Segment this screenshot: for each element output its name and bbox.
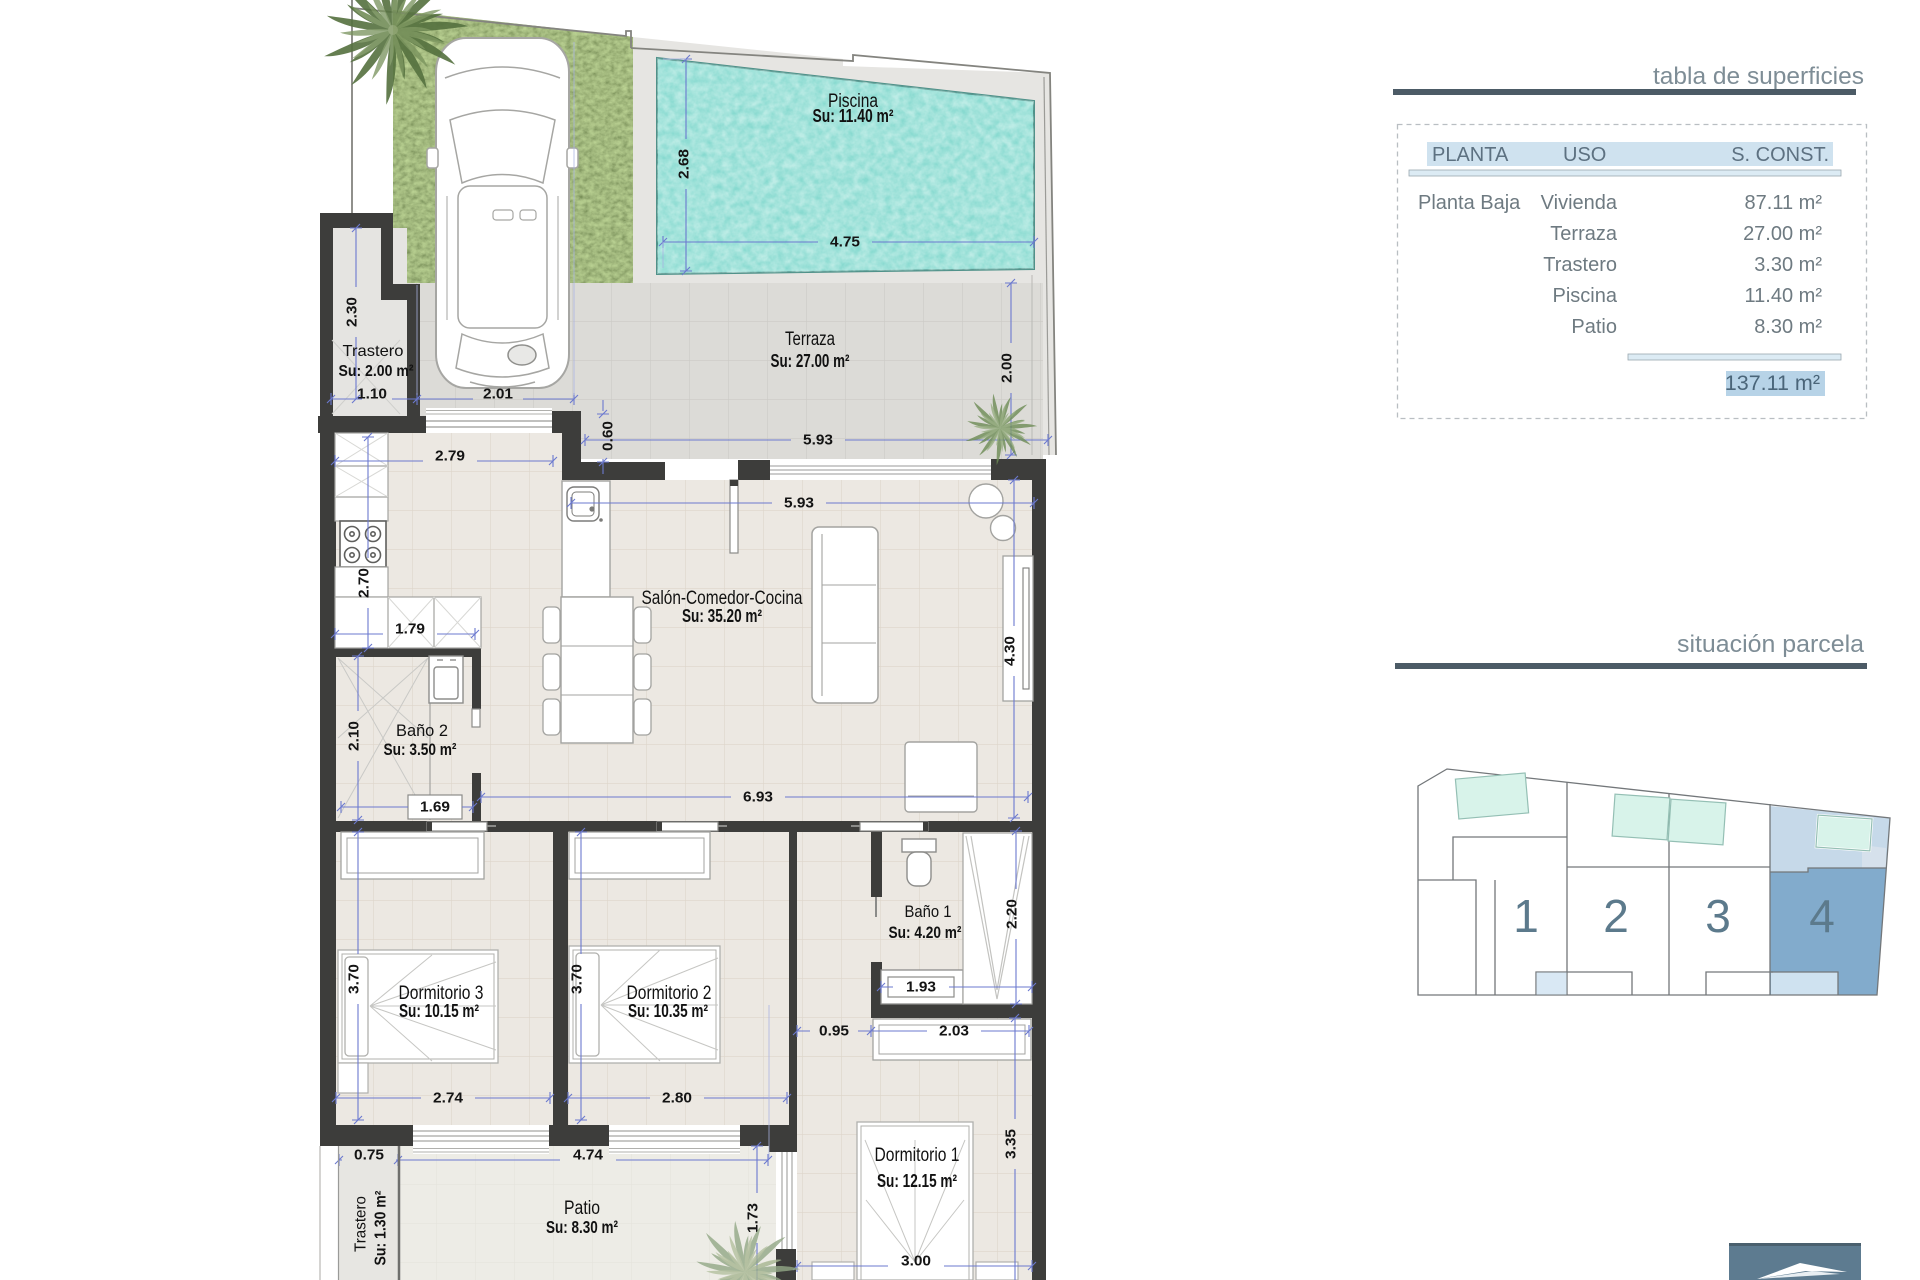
- svg-text:2.80: 2.80: [662, 1091, 692, 1107]
- svg-text:Su: 3.50 m²: Su: 3.50 m²: [384, 740, 457, 759]
- svg-text:Baño 1: Baño 1: [905, 902, 952, 921]
- svg-text:3.00: 3.00: [901, 1254, 931, 1270]
- svg-text:PLANTA: PLANTA: [1432, 144, 1509, 166]
- svg-text:2.68: 2.68: [677, 149, 693, 179]
- svg-text:27.00 m²: 27.00 m²: [1743, 223, 1822, 245]
- svg-text:4: 4: [1809, 890, 1835, 942]
- svg-text:137.11 m²: 137.11 m²: [1725, 371, 1820, 395]
- svg-text:1: 1: [1513, 890, 1539, 942]
- svg-text:2.20: 2.20: [1005, 899, 1021, 929]
- svg-text:Planta Baja: Planta Baja: [1418, 192, 1521, 214]
- svg-text:0.95: 0.95: [819, 1024, 849, 1040]
- svg-text:3.30 m²: 3.30 m²: [1754, 254, 1822, 276]
- svg-text:USO: USO: [1563, 144, 1606, 166]
- svg-text:Trastero: Trastero: [353, 1196, 370, 1252]
- svg-text:2.30: 2.30: [345, 297, 361, 327]
- svg-text:Su: 11.40 m²: Su: 11.40 m²: [813, 106, 894, 126]
- svg-text:Su: 10.35 m²: Su: 10.35 m²: [628, 1001, 708, 1021]
- svg-text:Su: 35.20 m²: Su: 35.20 m²: [682, 606, 762, 626]
- svg-text:2.00: 2.00: [1000, 353, 1016, 383]
- svg-text:Terraza: Terraza: [1550, 223, 1618, 245]
- svg-text:Piscina: Piscina: [1553, 285, 1618, 307]
- svg-text:4.74: 4.74: [573, 1148, 603, 1164]
- svg-text:5.93: 5.93: [784, 496, 814, 512]
- svg-text:2.74: 2.74: [433, 1091, 463, 1107]
- svg-text:Vivienda: Vivienda: [1541, 192, 1618, 214]
- svg-text:Patio: Patio: [1571, 316, 1617, 338]
- svg-text:1.79: 1.79: [395, 622, 425, 638]
- svg-text:5.93: 5.93: [803, 433, 833, 449]
- svg-text:2.79: 2.79: [435, 449, 465, 465]
- svg-text:2: 2: [1603, 890, 1629, 942]
- svg-text:Su: 2.00 m²: Su: 2.00 m²: [339, 363, 414, 380]
- svg-text:3.70: 3.70: [570, 964, 586, 994]
- svg-text:1.93: 1.93: [906, 980, 936, 996]
- svg-text:1.69: 1.69: [420, 800, 450, 816]
- svg-text:Dormitorio 1: Dormitorio 1: [875, 1145, 960, 1166]
- svg-text:8.30 m²: 8.30 m²: [1754, 316, 1822, 338]
- svg-text:87.11 m²: 87.11 m²: [1745, 192, 1823, 214]
- svg-text:4.75: 4.75: [830, 235, 860, 251]
- svg-text:6.93: 6.93: [743, 790, 773, 806]
- svg-text:1.10: 1.10: [357, 387, 387, 403]
- svg-text:0.75: 0.75: [354, 1148, 384, 1164]
- svg-text:Trastero: Trastero: [343, 343, 404, 360]
- svg-text:11.40 m²: 11.40 m²: [1745, 285, 1823, 307]
- svg-text:2.70: 2.70: [357, 568, 373, 598]
- svg-text:Terraza: Terraza: [785, 329, 835, 350]
- svg-text:0.60: 0.60: [601, 421, 617, 451]
- svg-text:S. CONST.: S. CONST.: [1731, 144, 1829, 166]
- svg-text:2.10: 2.10: [347, 721, 363, 751]
- svg-text:Trastero: Trastero: [1543, 254, 1617, 276]
- svg-text:Su: 4.20 m²: Su: 4.20 m²: [889, 923, 962, 942]
- svg-text:Su: 8.30 m²: Su: 8.30 m²: [546, 1217, 618, 1237]
- svg-text:Su: 10.15 m²: Su: 10.15 m²: [399, 1001, 479, 1021]
- svg-text:Su: 1.30 m²: Su: 1.30 m²: [373, 1191, 390, 1266]
- svg-text:situación parcela: situación parcela: [1677, 631, 1864, 658]
- svg-text:2.01: 2.01: [483, 387, 513, 403]
- svg-text:Su: 12.15 m²: Su: 12.15 m²: [877, 1171, 957, 1191]
- svg-text:Su: 27.00 m²: Su: 27.00 m²: [771, 351, 850, 371]
- svg-text:4.30: 4.30: [1003, 636, 1019, 666]
- svg-text:Baño 2: Baño 2: [396, 721, 448, 740]
- svg-text:3: 3: [1705, 890, 1731, 942]
- svg-text:tabla de superficies: tabla de superficies: [1653, 63, 1864, 90]
- svg-text:2.03: 2.03: [939, 1024, 969, 1040]
- svg-text:3.35: 3.35: [1004, 1129, 1020, 1159]
- svg-text:Patio: Patio: [564, 1198, 600, 1219]
- svg-text:3.70: 3.70: [347, 964, 363, 994]
